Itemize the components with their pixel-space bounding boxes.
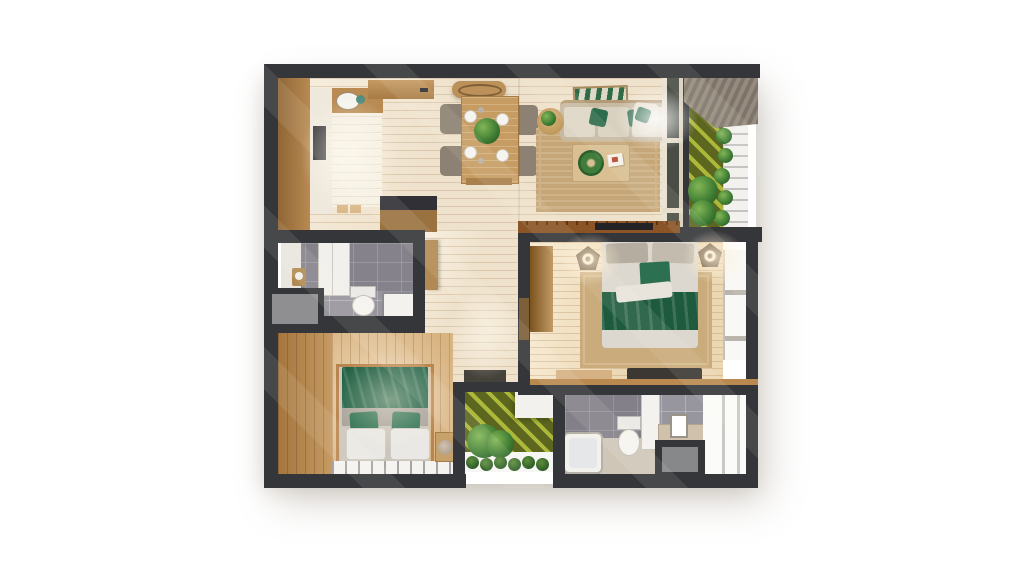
bathroom1-toilet-bowl: [352, 295, 375, 316]
patio-shrub-2: [480, 458, 493, 471]
plate-4: [496, 149, 509, 162]
master-wardrobe: [530, 246, 553, 332]
wall-patio-right: [553, 382, 565, 488]
wall-kitchen-bathroom1: [264, 230, 425, 243]
bathroom2-window-frame-1: [722, 392, 725, 474]
master-windows: [723, 250, 748, 360]
patio-shrub-3: [494, 456, 507, 469]
teddy-bear: [438, 440, 453, 455]
patio-shrub-5: [522, 456, 535, 469]
bathroom2-toilet-bowl: [618, 429, 640, 456]
floor-plan-render: [0, 0, 1024, 576]
wall-master-bathroom2: [518, 384, 758, 395]
bathtub: [563, 432, 603, 474]
bathroom1-shelf-object: [292, 268, 306, 286]
kitchen-cooktop: [313, 126, 326, 160]
wall-top: [264, 64, 760, 78]
master-pillow-2: [652, 242, 695, 263]
cutting-board-1: [337, 205, 348, 213]
balcony-plant-3: [714, 168, 730, 184]
dining-center-plant: [474, 118, 500, 144]
wall-bedroom2-right: [453, 382, 465, 488]
bathroom2-mirror: [670, 414, 688, 438]
balcony-plant-1: [716, 128, 732, 144]
kitchen-island-dark-top: [380, 196, 437, 210]
cup-1: [478, 107, 484, 113]
master-bed: [602, 240, 698, 348]
bathroom2-bright-zone: [703, 392, 746, 474]
hallway-console: [425, 240, 438, 290]
balcony-fern-2: [690, 200, 716, 226]
bathroom2-window-frame-2: [737, 392, 740, 474]
bathroom2-wood-trim: [530, 379, 758, 385]
shaft-gray-bathroom1: [272, 294, 318, 324]
window-mullion-1: [662, 138, 683, 143]
master-pillow-1: [606, 242, 649, 263]
patio-shrub-1: [466, 456, 479, 469]
kitchen-left-cabinet: [278, 78, 310, 230]
side-table-plant: [541, 111, 556, 126]
wall-right: [746, 227, 758, 488]
sofa-green-pillow-1: [588, 107, 608, 127]
entry-doormat: [464, 370, 506, 382]
kitchen-floor-bright: [332, 100, 382, 207]
cup-3: [478, 158, 484, 164]
plate-3: [464, 146, 477, 159]
coffee-table-wreath-plant: [578, 150, 604, 176]
bathtub-inner: [569, 438, 597, 468]
master-window-frame-2: [725, 336, 748, 341]
cutting-board-2: [350, 205, 361, 213]
bedroom2-canopy-frame: [336, 364, 434, 466]
balcony-plant-4: [718, 190, 733, 205]
floor-seam: [518, 78, 520, 230]
dining-bench: [466, 178, 512, 185]
master-lamp-left-bulb: [582, 253, 594, 265]
tv-console: [518, 221, 680, 233]
bathroom1-shelf-bowl: [295, 272, 303, 280]
shaft-gray-bathroom2: [662, 447, 698, 472]
wall-left: [264, 64, 278, 488]
wall-bottom-left: [264, 474, 466, 488]
coffee-table-book: [607, 153, 624, 167]
balcony-plant-2: [718, 148, 733, 163]
kitchen-kettle: [356, 95, 365, 104]
master-door: [519, 298, 529, 340]
bathroom1-dark-tile-zone: [300, 243, 413, 291]
patio-shrub-6: [536, 458, 549, 471]
patio-fern-2: [486, 430, 514, 458]
tv-flatscreen: [595, 223, 653, 230]
balcony-plant-5: [714, 210, 730, 226]
plate-1: [464, 110, 477, 123]
wall-bathroom1-right: [413, 230, 425, 330]
bathroom2-toilet-tank: [617, 416, 641, 430]
window-mullion-2: [662, 208, 683, 213]
master-lamp-right-bulb: [704, 250, 716, 262]
book-red-accent: [612, 157, 619, 163]
patio-shrub-4: [508, 458, 521, 471]
kitchen-cabinet-handle: [420, 88, 428, 92]
patio-white-planter: [515, 392, 553, 418]
master-window-frame-1: [725, 290, 748, 295]
bedroom2-wood-panel-band: [278, 333, 332, 476]
